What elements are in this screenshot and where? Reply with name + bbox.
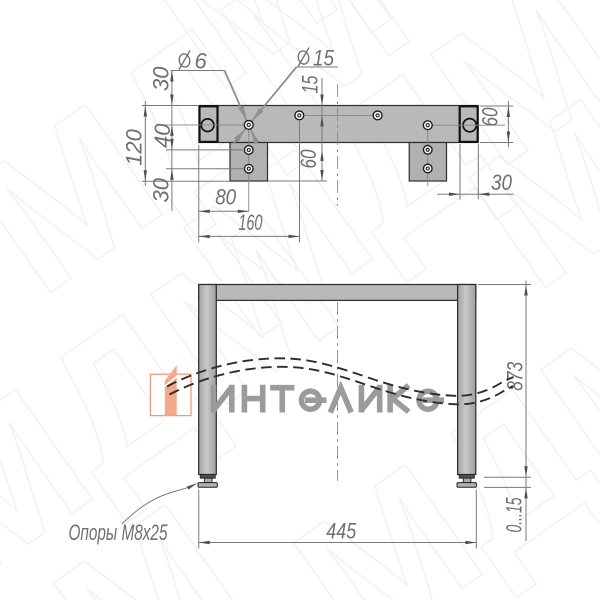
svg-text:30: 30: [491, 170, 513, 195]
svg-text:6: 6: [195, 49, 208, 74]
svg-text:30: 30: [149, 66, 174, 91]
svg-text:120: 120: [122, 128, 147, 165]
svg-text:445: 445: [326, 519, 357, 544]
svg-text:160: 160: [238, 210, 262, 235]
svg-text:15: 15: [298, 75, 323, 94]
svg-text:80: 80: [215, 185, 237, 210]
svg-text:40: 40: [150, 123, 175, 148]
svg-text:60: 60: [478, 107, 503, 127]
svg-text:Опоры М8х25: Опоры М8х25: [69, 520, 169, 545]
svg-text:873: 873: [502, 361, 527, 391]
svg-text:30: 30: [149, 177, 174, 202]
svg-text:0...15: 0...15: [502, 497, 527, 532]
